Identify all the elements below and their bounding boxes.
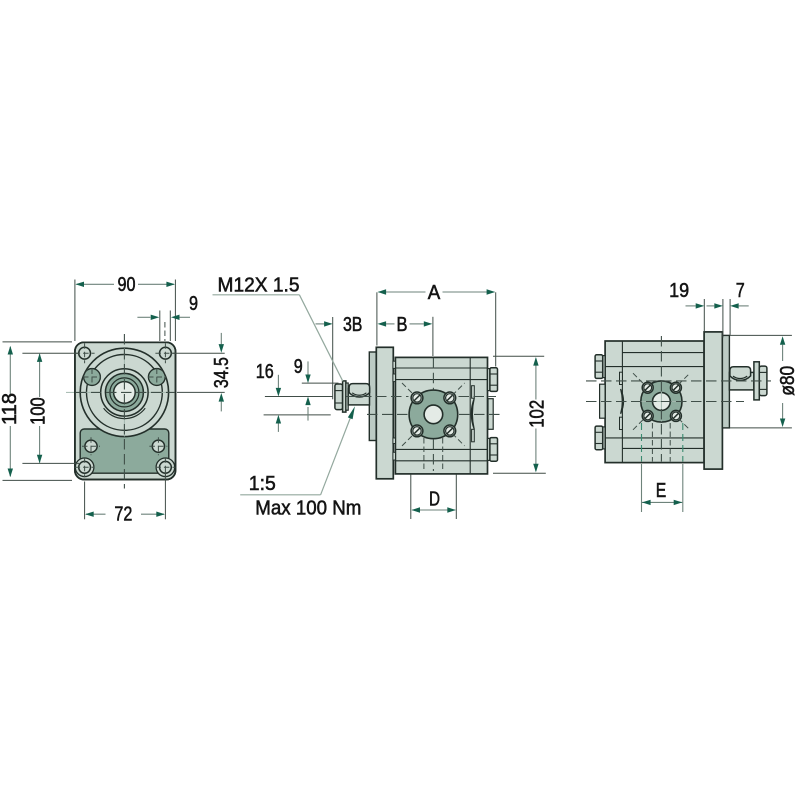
- svg-text:100: 100: [28, 397, 50, 425]
- svg-text:16: 16: [256, 361, 274, 383]
- svg-text:E: E: [656, 480, 667, 502]
- svg-text:102: 102: [526, 400, 548, 428]
- svg-text:9: 9: [189, 293, 198, 315]
- svg-text:3B: 3B: [343, 314, 363, 336]
- svg-text:9: 9: [294, 356, 303, 378]
- svg-text:90: 90: [118, 274, 136, 296]
- svg-text:M12X 1.5: M12X 1.5: [218, 275, 300, 297]
- svg-text:ø80: ø80: [777, 366, 799, 396]
- svg-text:118: 118: [0, 393, 21, 425]
- svg-text:34.5: 34.5: [211, 357, 233, 388]
- svg-text:Max 100 Nm: Max 100 Nm: [255, 498, 361, 520]
- svg-text:1:5: 1:5: [249, 473, 276, 495]
- svg-text:A: A: [428, 282, 441, 304]
- svg-text:B: B: [397, 314, 408, 336]
- svg-text:7: 7: [736, 280, 745, 302]
- svg-text:19: 19: [669, 280, 689, 302]
- svg-text:D: D: [429, 488, 440, 510]
- svg-text:72: 72: [114, 504, 132, 526]
